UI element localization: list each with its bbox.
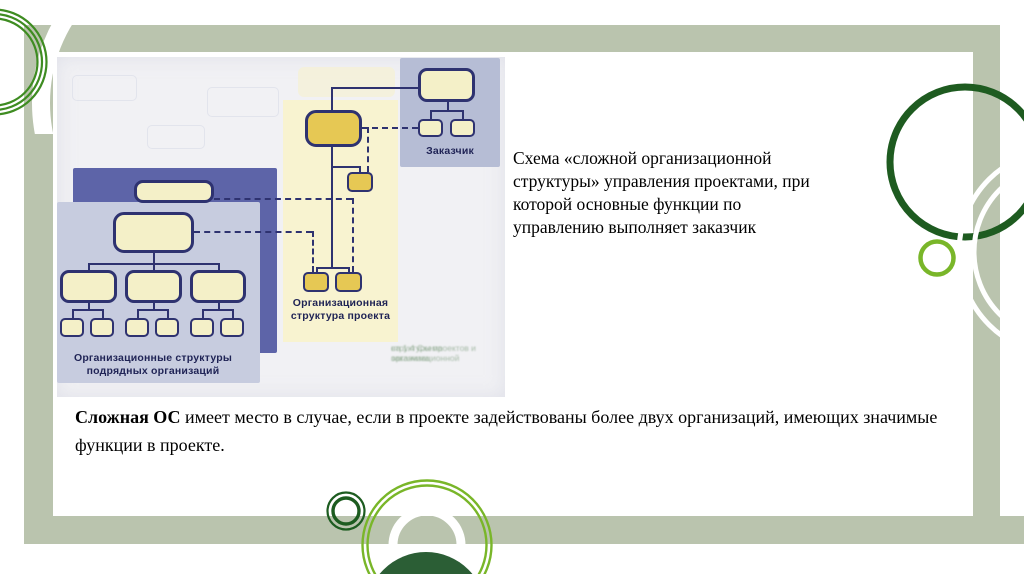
connector-line	[202, 309, 232, 311]
connector-line	[316, 267, 348, 269]
ghost-box	[207, 87, 279, 117]
connector-line	[331, 87, 418, 89]
bottom-note-bold: Сложная ОС	[75, 407, 181, 427]
connector-line	[202, 309, 204, 318]
right-caption: Схема «сложной организационной структуры…	[513, 147, 853, 239]
org-box	[347, 172, 373, 192]
dashed-connector	[352, 198, 354, 272]
connector-line	[430, 110, 432, 119]
org-box	[303, 272, 329, 292]
org-box	[125, 318, 149, 337]
dark-green-ring-right	[890, 87, 1024, 237]
customer-label: Заказчик	[400, 145, 500, 157]
dashed-connector	[214, 198, 352, 200]
ghost-box	[72, 75, 137, 101]
dashed-connector	[194, 231, 312, 233]
org-box	[90, 318, 114, 337]
org-box	[190, 318, 214, 337]
connector-line	[137, 309, 167, 311]
org-box	[125, 270, 182, 303]
dashed-connector	[312, 231, 314, 272]
slide-canvas: на 1.4 Схема организационной структуры п…	[0, 0, 1024, 574]
connector-line	[153, 263, 155, 270]
org-box-customer-main	[418, 68, 475, 102]
connector-line	[331, 147, 333, 267]
org-box	[60, 270, 117, 303]
org-box-back-top	[134, 180, 214, 203]
connector-line	[72, 309, 102, 311]
connector-line	[102, 309, 104, 318]
connector-line	[232, 309, 234, 318]
connector-line	[331, 166, 359, 168]
connector-line	[462, 110, 464, 119]
connector-line	[137, 309, 139, 318]
connector-line	[430, 110, 463, 112]
figure-image: на 1.4 Схема организационной структуры п…	[57, 57, 505, 397]
connector-line	[447, 102, 449, 110]
org-box	[220, 318, 244, 337]
right-caption-line: управлению выполняет заказчик	[513, 216, 853, 239]
org-box	[60, 318, 84, 337]
org-box-front-top	[113, 212, 194, 253]
org-box	[450, 119, 475, 137]
right-caption-line: структуры» управления проектами, при	[513, 170, 853, 193]
right-caption-line: Схема «сложной организационной	[513, 147, 853, 170]
org-box	[335, 272, 362, 292]
bottom-note-text: имеет место в случае, если в проекте зад…	[75, 407, 937, 455]
connector-line	[72, 309, 74, 318]
contractors-label: Организационные структуры подрядных орга…	[62, 352, 244, 378]
frame-band-left	[24, 25, 53, 544]
dark-green-blob-bottom	[366, 552, 486, 574]
connector-line	[331, 87, 333, 110]
frame-band-bottom	[24, 516, 1024, 544]
lime-ring-right-small	[921, 242, 954, 275]
dashed-connector	[367, 127, 369, 172]
dashed-connector	[362, 127, 418, 129]
org-box	[155, 318, 179, 337]
ghost-box	[147, 125, 205, 149]
right-caption-line: которой основные функции по	[513, 193, 853, 216]
org-box	[190, 270, 246, 303]
org-box	[418, 119, 443, 137]
project-structure-label: Организационная структура проекта	[289, 297, 392, 323]
frame-band-top	[24, 25, 1000, 52]
connector-line	[167, 309, 169, 318]
org-box-project-manager	[305, 110, 362, 147]
frame-band-right	[973, 25, 1000, 544]
connector-line	[88, 263, 90, 270]
connector-line	[218, 263, 220, 270]
bottom-note: Сложная ОС имеет место в случае, если в …	[75, 403, 980, 459]
ghost-box	[298, 67, 395, 97]
connector-line	[153, 253, 155, 263]
